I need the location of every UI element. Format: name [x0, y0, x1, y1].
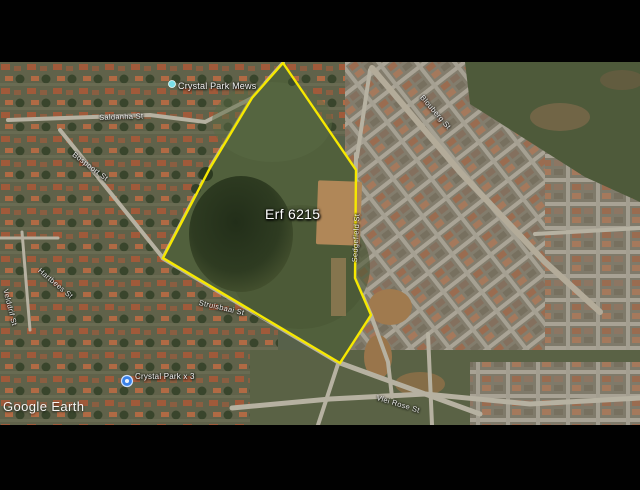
photo-marker-crystal-park-x3[interactable] — [122, 376, 133, 387]
google-earth-viewport: Crystal Park Mews Saldanha St Bospoort S… — [0, 0, 640, 490]
township-area-southeast — [470, 362, 640, 425]
bottom-letterbox-bar — [0, 425, 640, 490]
street-label-saldanha: Saldanha St — [99, 111, 143, 122]
place-label-crystal-park-x3: Crystal Park x 3 — [135, 372, 195, 381]
place-label-crystal-park-mews: Crystal Park Mews — [178, 81, 256, 91]
place-marker-crystal-park-mews[interactable] — [169, 81, 176, 88]
grass-texture — [212, 82, 332, 162]
parcel-label-erf-6215: Erf 6215 — [265, 206, 320, 222]
satellite-map[interactable]: Crystal Park Mews Saldanha St Bospoort S… — [0, 62, 640, 425]
satellite-canvas — [0, 62, 640, 425]
google-earth-watermark: Google Earth — [3, 399, 84, 414]
top-letterbox-bar — [0, 0, 640, 62]
dirt-patch — [530, 103, 590, 131]
tree-mound — [189, 176, 293, 292]
bare-soil-strip — [331, 258, 346, 316]
